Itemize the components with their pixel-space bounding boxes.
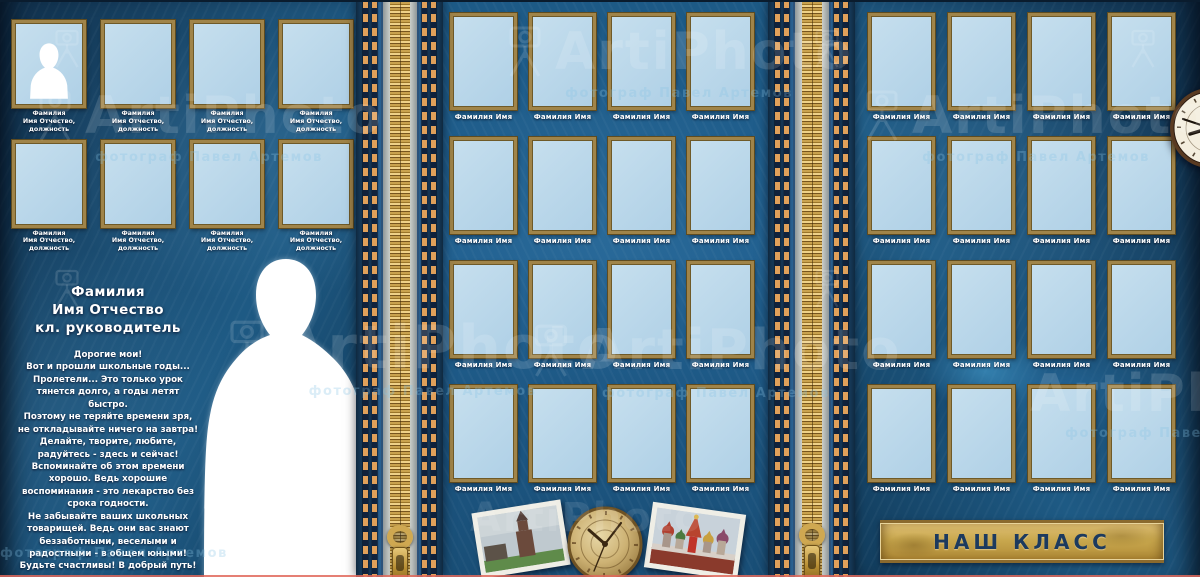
frame-caption: Фамилия Имя: [948, 113, 1015, 121]
frame-caption-line: должность: [12, 126, 86, 134]
photo-slot[interactable]: [687, 385, 754, 482]
frame-caption: Фамилия Имя: [868, 485, 935, 493]
photo-cell: Фамилия Имя: [1028, 13, 1095, 121]
frame-caption: Фамилия Имя: [1028, 361, 1095, 369]
frame-caption: Фамилия Имя: [687, 485, 754, 493]
st-basils-cathedral-photo: [644, 502, 746, 577]
zipper-pull-ring: [387, 525, 413, 549]
photo-cell: Фамилия Имя: [868, 385, 935, 493]
farewell-message-line: Вот и прошли школьные годы...: [3, 361, 213, 373]
frame-caption: Фамилия Имя: [450, 237, 517, 245]
photo-slot[interactable]: [529, 261, 596, 358]
farewell-message-line: Вспоминайте об этом времени: [3, 461, 213, 473]
photo-slot[interactable]: [1108, 13, 1175, 110]
teacher-photo-grid: ФамилияИмя Отчество,должностьФамилияИмя …: [12, 20, 353, 253]
photo-cell: Фамилия Имя: [608, 137, 675, 245]
frame-caption: Фамилия Имя: [948, 485, 1015, 493]
photo-slot[interactable]: [687, 137, 754, 234]
farewell-message-line: Дорогие мои!: [3, 349, 213, 361]
photo-slot[interactable]: [608, 261, 675, 358]
photo-cell: ФамилияИмя Отчество,должность: [101, 140, 175, 254]
photo-slot[interactable]: [279, 140, 353, 228]
frame-caption-line: Фамилия: [190, 110, 264, 118]
frame-caption-line: должность: [12, 245, 86, 253]
photo-cell: Фамилия Имя: [1028, 137, 1095, 245]
students-photo-grid-left: Фамилия ИмяФамилия ИмяФамилия ИмяФамилия…: [450, 13, 754, 493]
frame-caption: ФамилияИмя Отчество,должность: [190, 110, 264, 134]
frame-caption: Фамилия Имя: [450, 113, 517, 121]
photo-cell: Фамилия Имя: [948, 385, 1015, 493]
zipper-teeth: [390, 0, 410, 577]
frame-caption-line: Имя Отчество,: [279, 118, 353, 126]
photo-slot[interactable]: [608, 13, 675, 110]
frame-caption-line: должность: [279, 126, 353, 134]
photo-slot[interactable]: [450, 13, 517, 110]
frame-caption: Фамилия Имя: [948, 237, 1015, 245]
photo-cell: Фамилия Имя: [529, 261, 596, 369]
frame-caption-line: должность: [279, 245, 353, 253]
frame-caption: Фамилия Имя: [1108, 237, 1175, 245]
photo-cell: ФамилияИмя Отчество,должность: [101, 20, 175, 134]
photo-cell: Фамилия Имя: [948, 137, 1015, 245]
our-class-banner-label: НАШ КЛАСС: [933, 530, 1111, 554]
photo-cell: Фамилия Имя: [450, 261, 517, 369]
frame-caption: Фамилия Имя: [529, 485, 596, 493]
zipper-slider: [804, 545, 820, 577]
photo-slot[interactable]: [450, 261, 517, 358]
frame-caption-line: должность: [190, 126, 264, 134]
photo-cell: Фамилия Имя: [450, 13, 517, 121]
denim-stitches: [421, 0, 437, 577]
photo-slot[interactable]: [190, 140, 264, 228]
photo-cell: Фамилия Имя: [1108, 13, 1175, 121]
photo-cell: Фамилия Имя: [450, 137, 517, 245]
frame-caption: Фамилия Имя: [868, 237, 935, 245]
wall-clock: [1167, 85, 1200, 171]
photo-slot[interactable]: [1028, 261, 1095, 358]
photo-slot[interactable]: [1108, 261, 1175, 358]
photo-slot[interactable]: [868, 261, 935, 358]
farewell-message-line: срока годности.: [3, 498, 213, 510]
frame-caption-line: Фамилия: [12, 110, 86, 118]
frame-caption: Фамилия Имя: [868, 113, 935, 121]
frame-caption: Фамилия Имя: [1028, 237, 1095, 245]
zipper-divider-left: [356, 0, 443, 577]
photo-slot[interactable]: [190, 20, 264, 108]
frame-caption: Фамилия Имя: [687, 237, 754, 245]
photo-slot[interactable]: [608, 385, 675, 482]
teacher-title-line: кл. руководитель: [3, 319, 213, 337]
frame-caption: Фамилия Имя: [608, 113, 675, 121]
photo-cell: Фамилия Имя: [1108, 261, 1175, 369]
photo-slot[interactable]: [948, 137, 1015, 234]
frame-caption: Фамилия Имя: [1028, 113, 1095, 121]
photo-cell: Фамилия Имя: [868, 261, 935, 369]
photo-slot[interactable]: [948, 13, 1015, 110]
photo-cell: ФамилияИмя Отчество,должность: [12, 140, 86, 254]
photo-cell: Фамилия Имя: [529, 13, 596, 121]
farewell-message: Дорогие мои!Вот и прошли школьные годы..…: [3, 349, 213, 573]
photo-cell: ФамилияИмя Отчество,должность: [190, 140, 264, 254]
zipper-slider: [392, 547, 408, 577]
teacher-photo-slot[interactable]: [12, 20, 86, 108]
farewell-message-line: тянется долго, а годы летят: [3, 386, 213, 398]
photo-cell: Фамилия Имя: [1108, 385, 1175, 493]
photo-cell: ФамилияИмя Отчество,должность: [279, 20, 353, 134]
frame-caption: Фамилия Имя: [529, 113, 596, 121]
woman-silhouette: [202, 255, 370, 577]
kremlin-tower-photo: [471, 499, 570, 577]
frame-caption-line: должность: [101, 126, 175, 134]
frame-caption: Фамилия Имя: [1108, 113, 1175, 121]
class-teacher-title: Фамилия Имя Отчество кл. руководитель: [3, 283, 213, 338]
farewell-message-line: радостными - в общем юными!: [3, 548, 213, 560]
photo-slot[interactable]: [1028, 13, 1095, 110]
frame-caption: ФамилияИмя Отчество,должность: [101, 230, 175, 254]
album-spread: ФамилияИмя Отчество,должностьФамилияИмя …: [0, 0, 1200, 577]
frame-caption-line: должность: [190, 245, 264, 253]
frame-caption: ФамилияИмя Отчество,должность: [12, 110, 86, 134]
farewell-message-line: Поэтому не теряйте времени зря,: [3, 411, 213, 423]
frame-caption-line: Имя Отчество,: [190, 118, 264, 126]
photo-slot[interactable]: [529, 137, 596, 234]
photo-slot[interactable]: [279, 20, 353, 108]
frame-caption: ФамилияИмя Отчество,должность: [101, 110, 175, 134]
frame-caption: ФамилияИмя Отчество,должность: [12, 230, 86, 254]
farewell-message-line: беззаботными, веселыми и: [3, 536, 213, 548]
photo-slot[interactable]: [12, 140, 86, 228]
photo-slot[interactable]: [101, 140, 175, 228]
teacher-title-line: Фамилия: [3, 283, 213, 301]
frame-caption: ФамилияИмя Отчество,должность: [190, 230, 264, 254]
photo-cell: Фамилия Имя: [608, 13, 675, 121]
frame-caption-line: Фамилия: [279, 110, 353, 118]
frame-caption: Фамилия Имя: [1108, 485, 1175, 493]
zipper-pull[interactable]: [383, 525, 417, 577]
frame-caption: Фамилия Имя: [687, 113, 754, 121]
photo-cell: ФамилияИмя Отчество,должность: [190, 20, 264, 134]
photo-slot[interactable]: [529, 13, 596, 110]
frame-caption: Фамилия Имя: [608, 361, 675, 369]
photo-cell: Фамилия Имя: [608, 261, 675, 369]
farewell-message-line: Не забывайте ваших школьных: [3, 511, 213, 523]
zipper-pull[interactable]: [795, 523, 829, 577]
farewell-message-line: Делайте, творите, любите,: [3, 436, 213, 448]
frame-caption: Фамилия Имя: [529, 361, 596, 369]
photo-cell: Фамилия Имя: [1108, 137, 1175, 245]
photo-cell: Фамилия Имя: [868, 137, 935, 245]
photo-slot[interactable]: [450, 385, 517, 482]
frame-caption: Фамилия Имя: [450, 485, 517, 493]
photo-cell: Фамилия Имя: [948, 13, 1015, 121]
frame-caption: Фамилия Имя: [1028, 485, 1095, 493]
photo-slot[interactable]: [529, 385, 596, 482]
teacher-title-line: Имя Отчество: [3, 301, 213, 319]
frame-caption: ФамилияИмя Отчество,должность: [279, 230, 353, 254]
photo-slot[interactable]: [1028, 137, 1095, 234]
photo-slot[interactable]: [868, 385, 935, 482]
frame-caption: Фамилия Имя: [529, 237, 596, 245]
farewell-message-line: Будьте счастливы! В добрый путь!: [3, 560, 213, 572]
farewell-message-line: воспоминания - это лекарство без: [3, 486, 213, 498]
photo-cell: Фамилия Имя: [1028, 385, 1095, 493]
photo-slot[interactable]: [608, 137, 675, 234]
photo-slot[interactable]: [868, 13, 935, 110]
frame-caption: Фамилия Имя: [948, 361, 1015, 369]
frame-caption: ФамилияИмя Отчество,должность: [279, 110, 353, 134]
frame-caption-line: Фамилия: [101, 110, 175, 118]
photo-slot[interactable]: [101, 20, 175, 108]
frame-caption: Фамилия Имя: [608, 237, 675, 245]
denim-stitches: [362, 0, 378, 577]
frame-caption: Фамилия Имя: [450, 361, 517, 369]
photo-cell: Фамилия Имя: [529, 137, 596, 245]
photo-slot[interactable]: [687, 261, 754, 358]
photo-cell: Фамилия Имя: [450, 385, 517, 493]
photo-cell: Фамилия Имя: [948, 261, 1015, 369]
photo-cell: Фамилия Имя: [687, 261, 754, 369]
photo-slot[interactable]: [1108, 137, 1175, 234]
farewell-message-line: быстро.: [3, 399, 213, 411]
farewell-message-line: не откладывайте ничего на завтра!: [3, 424, 213, 436]
brass-compass-clock: [566, 505, 644, 577]
photo-cell: ФамилияИмя Отчество,должность: [279, 140, 353, 254]
denim-stitches: [833, 0, 849, 577]
our-class-banner: НАШ КЛАСС: [880, 520, 1164, 563]
farewell-message-line: хорошо. Ведь хорошие: [3, 473, 213, 485]
photo-slot[interactable]: [948, 261, 1015, 358]
photo-cell: Фамилия Имя: [608, 385, 675, 493]
students-photo-grid-right: Фамилия ИмяФамилия ИмяФамилия ИмяФамилия…: [868, 13, 1175, 493]
photo-slot[interactable]: [1028, 385, 1095, 482]
photo-cell: Фамилия Имя: [687, 13, 754, 121]
frame-caption: Фамилия Имя: [868, 361, 935, 369]
farewell-message-line: Пролетели... Это только урок: [3, 374, 213, 386]
photo-slot[interactable]: [450, 137, 517, 234]
denim-stitches: [774, 0, 790, 577]
frame-caption: Фамилия Имя: [687, 361, 754, 369]
photo-cell: Фамилия Имя: [868, 13, 935, 121]
photo-slot[interactable]: [687, 13, 754, 110]
photo-slot[interactable]: [1108, 385, 1175, 482]
photo-cell: Фамилия Имя: [529, 385, 596, 493]
zipper-pull-ring: [799, 523, 825, 547]
frame-caption: Фамилия Имя: [608, 485, 675, 493]
photo-cell: Фамилия Имя: [687, 385, 754, 493]
zipper-teeth: [802, 0, 822, 577]
frame-caption-line: Имя Отчество,: [12, 118, 86, 126]
frame-caption-line: Имя Отчество,: [101, 118, 175, 126]
photo-cell: Фамилия Имя: [687, 137, 754, 245]
photo-cell: ФамилияИмя Отчество,должность: [12, 20, 86, 134]
frame-caption: Фамилия Имя: [1108, 361, 1175, 369]
farewell-message-line: радуйтесь - здесь и сейчас!: [3, 449, 213, 461]
photo-slot[interactable]: [868, 137, 935, 234]
photo-slot[interactable]: [948, 385, 1015, 482]
zipper-divider-right: [768, 0, 855, 577]
person-head-shoulders-silhouette: [24, 32, 74, 106]
farewell-message-line: товарищей. Ведь они вас знают: [3, 523, 213, 535]
frame-caption-line: должность: [101, 245, 175, 253]
photo-cell: Фамилия Имя: [1028, 261, 1095, 369]
top-edge-line: [0, 0, 1200, 2]
